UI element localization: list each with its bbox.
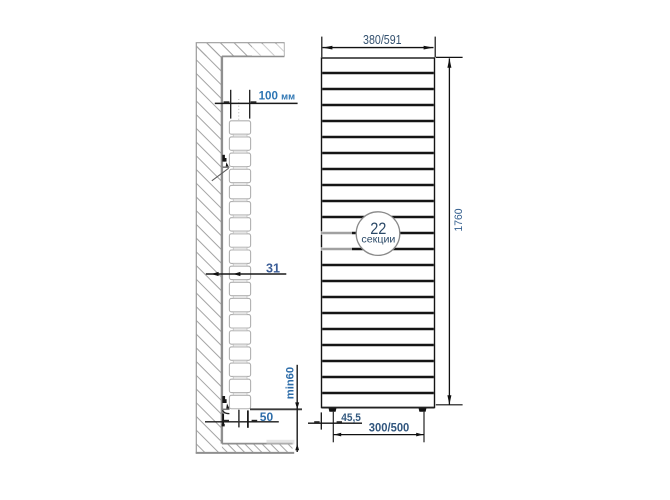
svg-text:45,5: 45,5 <box>341 412 361 424</box>
svg-text:min60: min60 <box>285 367 297 399</box>
svg-text:380/591: 380/591 <box>363 33 402 47</box>
svg-text:50: 50 <box>260 410 274 424</box>
svg-text:300/500: 300/500 <box>369 420 410 434</box>
svg-text:100 мм: 100 мм <box>259 90 296 103</box>
svg-text:секции: секции <box>361 235 395 246</box>
svg-text:1760: 1760 <box>453 209 465 232</box>
svg-text:31: 31 <box>266 262 280 276</box>
